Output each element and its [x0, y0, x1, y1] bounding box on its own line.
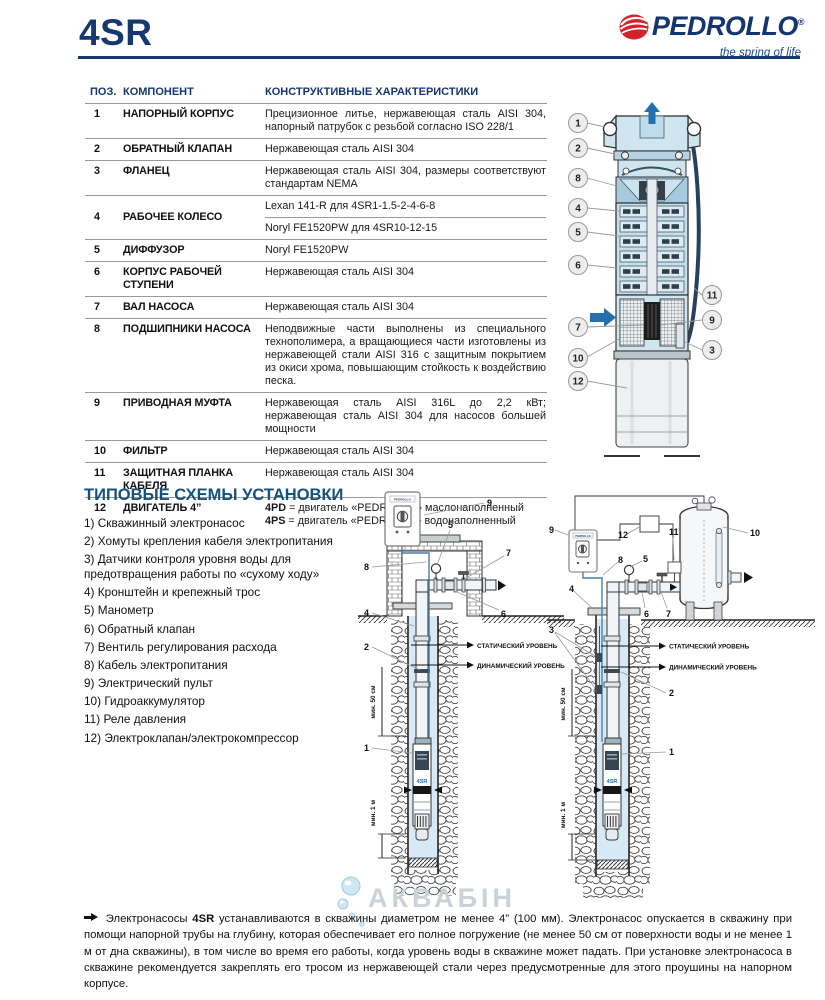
cable-clamp — [604, 669, 620, 673]
control-panel: PEDROLLO — [569, 530, 597, 572]
registered-mark: ® — [798, 17, 804, 27]
col-characteristics: КОНСТРУКТИВНЫЕ ХАРАКТЕРИСТИКИ — [265, 86, 547, 98]
row-component: ВАЛ НАСОСА — [123, 301, 265, 314]
components-table: ПОЗ. КОМПОНЕНТ КОНСТРУКТИВНЫЕ ХАРАКТЕРИС… — [85, 84, 547, 532]
lifting-eyelet — [604, 123, 617, 136]
dynamic-level-label: ДИНАМИЧЕСКИЙ УРОВЕНЬ — [669, 663, 757, 672]
row-desc: Нержавеющая сталь AISI 304 — [265, 301, 547, 314]
callout-number: 7 — [506, 548, 511, 558]
row-desc: Нержавеющая сталь AISI 304, размеры соот… — [265, 165, 547, 191]
callout-number: 8 — [575, 174, 581, 185]
pump-shaft — [647, 179, 657, 297]
callout-number: 4 — [569, 584, 574, 594]
row-component: ПОДШИПНИКИ НАСОСА — [123, 323, 265, 388]
row-num: 2 — [85, 143, 123, 156]
table-row: 1 НАПОРНЫЙ КОРПУС Прецизионное литье, не… — [85, 103, 547, 138]
legend-item: 2) Хомуты крепления кабеля электропитани… — [84, 534, 362, 549]
control-panel: PEDROLLO — [385, 492, 420, 546]
table-row: 8 ПОДШИПНИКИ НАСОСА Неподвижные части вы… — [85, 318, 547, 392]
table-header: ПОЗ. КОМПОНЕНТ КОНСТРУКТИВНЫЕ ХАРАКТЕРИС… — [85, 84, 547, 103]
callout-number: 7 — [666, 609, 671, 619]
row-component: КОРПУС РАБОЧЕЙ СТУПЕНИ — [123, 266, 265, 292]
row-component: ФИЛЬТР — [123, 445, 265, 458]
row-desc: Прецизионное литье, нержавеющая сталь AI… — [265, 108, 547, 134]
min-50cm-label: мин. 50 см — [370, 685, 377, 719]
col-pos: ПОЗ. — [85, 86, 123, 98]
legend-item: 7) Вентиль регулирования расхода — [84, 640, 362, 655]
row-component: ОБРАТНЫЙ КЛАПАН — [123, 143, 265, 156]
callout-number: 11 — [707, 291, 718, 302]
check-valve — [638, 583, 647, 591]
legend-item: 4) Кронштейн и крепежный трос — [84, 585, 362, 600]
pedrollo-swirl-icon — [618, 13, 650, 46]
well-pit — [387, 535, 482, 616]
callout-number: 2 — [364, 642, 369, 652]
table-row: 5 ДИФФУЗОР Noryl FE1520PW — [85, 239, 547, 261]
outflow-arrow-icon — [744, 572, 753, 583]
callout-number: 5 — [575, 228, 581, 239]
table-row: 6 КОРПУС РАБОЧЕЙ СТУПЕНИ Нержавеющая ста… — [85, 261, 547, 296]
callout-number: 2 — [669, 688, 674, 698]
callout-number: 10 — [750, 528, 760, 538]
callout-number: 6 — [644, 609, 649, 619]
header-divider — [78, 56, 800, 59]
row-num: 6 — [85, 266, 123, 292]
callout-number: 4 — [364, 608, 369, 618]
legend-item: 12) Электроклапан/электрокомпрессор — [84, 731, 362, 746]
row-num: 9 — [85, 397, 123, 436]
discharge-head — [604, 102, 701, 160]
callout-number: 5 — [643, 554, 648, 564]
callout-number: 9 — [709, 316, 715, 327]
callout-number: 4 — [575, 204, 581, 215]
brand-name: PEDROLLO® — [652, 13, 804, 40]
flow-valve — [459, 572, 469, 575]
row-component: ПРИВОДНАЯ МУФТА — [123, 397, 265, 436]
min-1m-label: мин. 1 м — [370, 800, 377, 826]
legend-item: 8) Кабель электропитания — [84, 658, 362, 673]
callout-number: 1 — [575, 119, 581, 130]
page-title: 4SR — [79, 12, 152, 54]
watermark-text: АКВАБІН — [368, 883, 516, 914]
callout-number: 2 — [575, 144, 581, 155]
flow-arrow-icon — [498, 581, 506, 591]
callout-number: 12 — [618, 530, 628, 540]
table-row: 2 ОБРАТНЫЙ КЛАПАН Нержавеющая сталь AISI… — [85, 138, 547, 160]
section-title: ТИПОВЫЕ СХЕМЫ УСТАНОВКИ — [84, 486, 343, 505]
static-level-label: СТАТИЧЕСКИЙ УРОВЕНЬ — [669, 642, 750, 651]
col-component: КОМПОНЕНТ — [123, 86, 265, 98]
row-component: ФЛАНЕЦ — [123, 165, 265, 191]
installation-legend: 1) Скважинный электронасос 2) Хомуты кре… — [84, 516, 362, 749]
pump-model-label: 4SR — [417, 779, 428, 785]
check-valve-section — [618, 160, 686, 177]
suction-section — [590, 295, 688, 351]
callout-number: 7 — [575, 323, 581, 334]
flow-valve — [657, 573, 667, 576]
row-num: 7 — [85, 301, 123, 314]
row-num: 3 — [85, 165, 123, 191]
row-desc: Неподвижные части выполнены из специальн… — [265, 323, 547, 388]
legend-item: 1) Скважинный электронасос — [84, 516, 362, 531]
legend-item: 5) Манометр — [84, 603, 362, 618]
callout-number: 6 — [575, 261, 581, 272]
pump-cutaway-figure: 1 2 8 4 5 6 7 10 12 11 9 3 — [552, 96, 820, 462]
table-row: 10 ФИЛЬТР Нержавеющая сталь AISI 304 — [85, 440, 547, 462]
legend-item: 10) Гидроаккумулятор — [84, 694, 362, 709]
row-desc: Нержавеющая сталь AISI 316L до 2,2 кВт; … — [265, 397, 547, 436]
note-lead: Электронасосы — [106, 913, 188, 925]
pressure-gauge — [624, 565, 633, 574]
row-num: 10 — [85, 445, 123, 458]
arrow-bullet-icon — [84, 913, 98, 922]
check-valve — [445, 581, 454, 590]
callout-number: 3 — [549, 625, 554, 635]
legend-item: 11) Реле давления — [84, 712, 362, 727]
row-num: 1 — [85, 108, 123, 134]
callout-number: 11 — [669, 527, 679, 537]
panel-brand-label: PEDROLLO — [575, 534, 591, 538]
row-desc: Нержавеющая сталь AISI 304 — [265, 445, 547, 458]
pump-model-label: 4SR — [607, 779, 618, 785]
row-desc: Нержавеющая сталь AISI 304 — [265, 143, 547, 156]
legend-item: 3) Датчики контроля уровня воды для пред… — [84, 552, 362, 581]
row-component: ДИФФУЗОР — [123, 244, 265, 257]
callout-number: 1 — [669, 747, 674, 757]
row-desc: Noryl FE1520PW — [265, 244, 547, 257]
row-num: 4 — [85, 211, 123, 224]
pressure-gauge — [431, 564, 440, 573]
callout-number: 5 — [448, 520, 453, 530]
callout-number: 10 — [572, 354, 584, 365]
row-component: РАБОЧЕЕ КОЛЕСО — [123, 211, 265, 224]
pit-lid — [414, 535, 460, 542]
piping — [414, 564, 506, 738]
row-desc-line: Noryl FE1520PW для 4SR10-12-15 — [265, 217, 546, 235]
installation-diagram-left: 4SR СТАТИЧЕСКИЙ УРОВЕНЬ ДИНАМИЧЕСКИЙ УРО… — [356, 486, 570, 910]
callout-number: 8 — [618, 555, 623, 565]
legend-item: 9) Электрический пульт — [84, 676, 362, 691]
installation-diagram-right: 4SR СТАТИЧЕСКИЙ УРОВЕНЬ ДИНАМИЧЕСКИЙ УРО… — [545, 486, 817, 910]
callout-number: 12 — [572, 377, 584, 388]
cable-clamp — [414, 669, 430, 673]
air-valve — [697, 503, 711, 510]
callout-number: 9 — [487, 498, 492, 508]
row-desc: Lexan 141-R для 4SR1-1.5-2-4-6-8 Noryl F… — [265, 200, 547, 235]
row-num: 5 — [85, 244, 123, 257]
table-row: 9 ПРИВОДНАЯ МУФТА Нержавеющая сталь AISI… — [85, 392, 547, 440]
row-component: НАПОРНЫЙ КОРПУС — [123, 108, 265, 134]
note-body: устанавливаются в скважины диаметром не … — [84, 913, 792, 990]
min-50cm-label: мин. 50 см — [560, 687, 567, 721]
callout-number: 8 — [364, 562, 369, 572]
row-desc: Нержавеющая сталь AISI 304 — [265, 266, 547, 292]
catalog-page: 4SR PEDROLLO® the spring of life ПОЗ. КО… — [0, 0, 825, 1000]
table-row: 7 ВАЛ НАСОСА Нержавеющая сталь AISI 304 — [85, 296, 547, 318]
motor-section — [614, 351, 690, 447]
table-row: 3 ФЛАНЕЦ Нержавеющая сталь AISI 304, раз… — [85, 160, 547, 195]
legend-item: 6) Обратный клапан — [84, 622, 362, 637]
brand-logo: PEDROLLO® the spring of life — [590, 13, 804, 59]
electrovalve-box — [640, 516, 659, 532]
lifting-eyelet — [688, 123, 701, 136]
level-gauge — [716, 533, 722, 583]
note-model: 4SR — [192, 913, 214, 925]
panel-brand-label: PEDROLLO — [394, 498, 411, 502]
row-num: 8 — [85, 323, 123, 388]
footer-note: Электронасосы 4SR устанавливаются в сква… — [84, 911, 792, 992]
pressure-tank — [680, 497, 753, 620]
pressure-switch — [668, 562, 681, 582]
callout-number: 6 — [501, 609, 506, 619]
row-desc-line: Lexan 141-R для 4SR1-1.5-2-4-6-8 — [265, 200, 546, 213]
ground-surface — [358, 616, 564, 623]
table-row: 4 РАБОЧЕЕ КОЛЕСО Lexan 141-R для 4SR1-1.… — [85, 195, 547, 239]
min-1m-label: мин. 1 м — [560, 802, 567, 828]
callout-number: 9 — [549, 525, 554, 535]
callout-number: 3 — [709, 346, 715, 357]
callout-number: 1 — [364, 743, 369, 753]
inlet-arrow-icon — [590, 308, 616, 327]
